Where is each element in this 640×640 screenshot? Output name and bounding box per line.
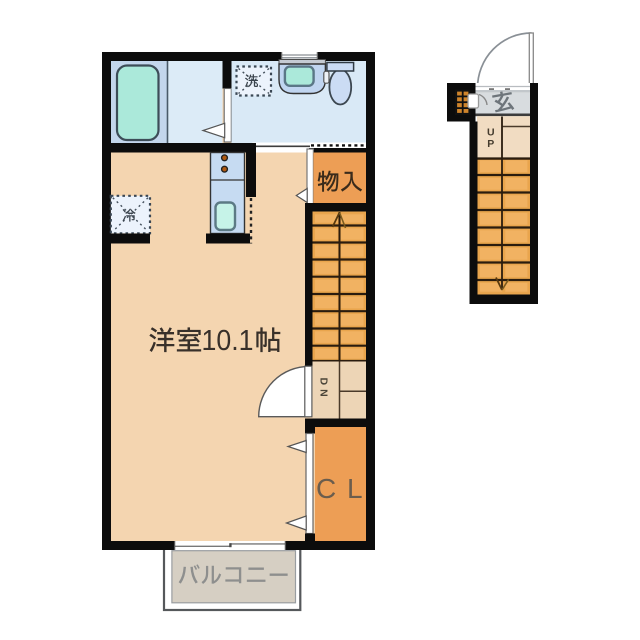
svg-text:P: P [487,138,494,150]
svg-text:C L: C L [316,473,364,504]
svg-text:U: U [487,127,495,139]
svg-text:DN: DN [318,378,330,401]
svg-text:10.1: 10.1 [202,325,254,357]
